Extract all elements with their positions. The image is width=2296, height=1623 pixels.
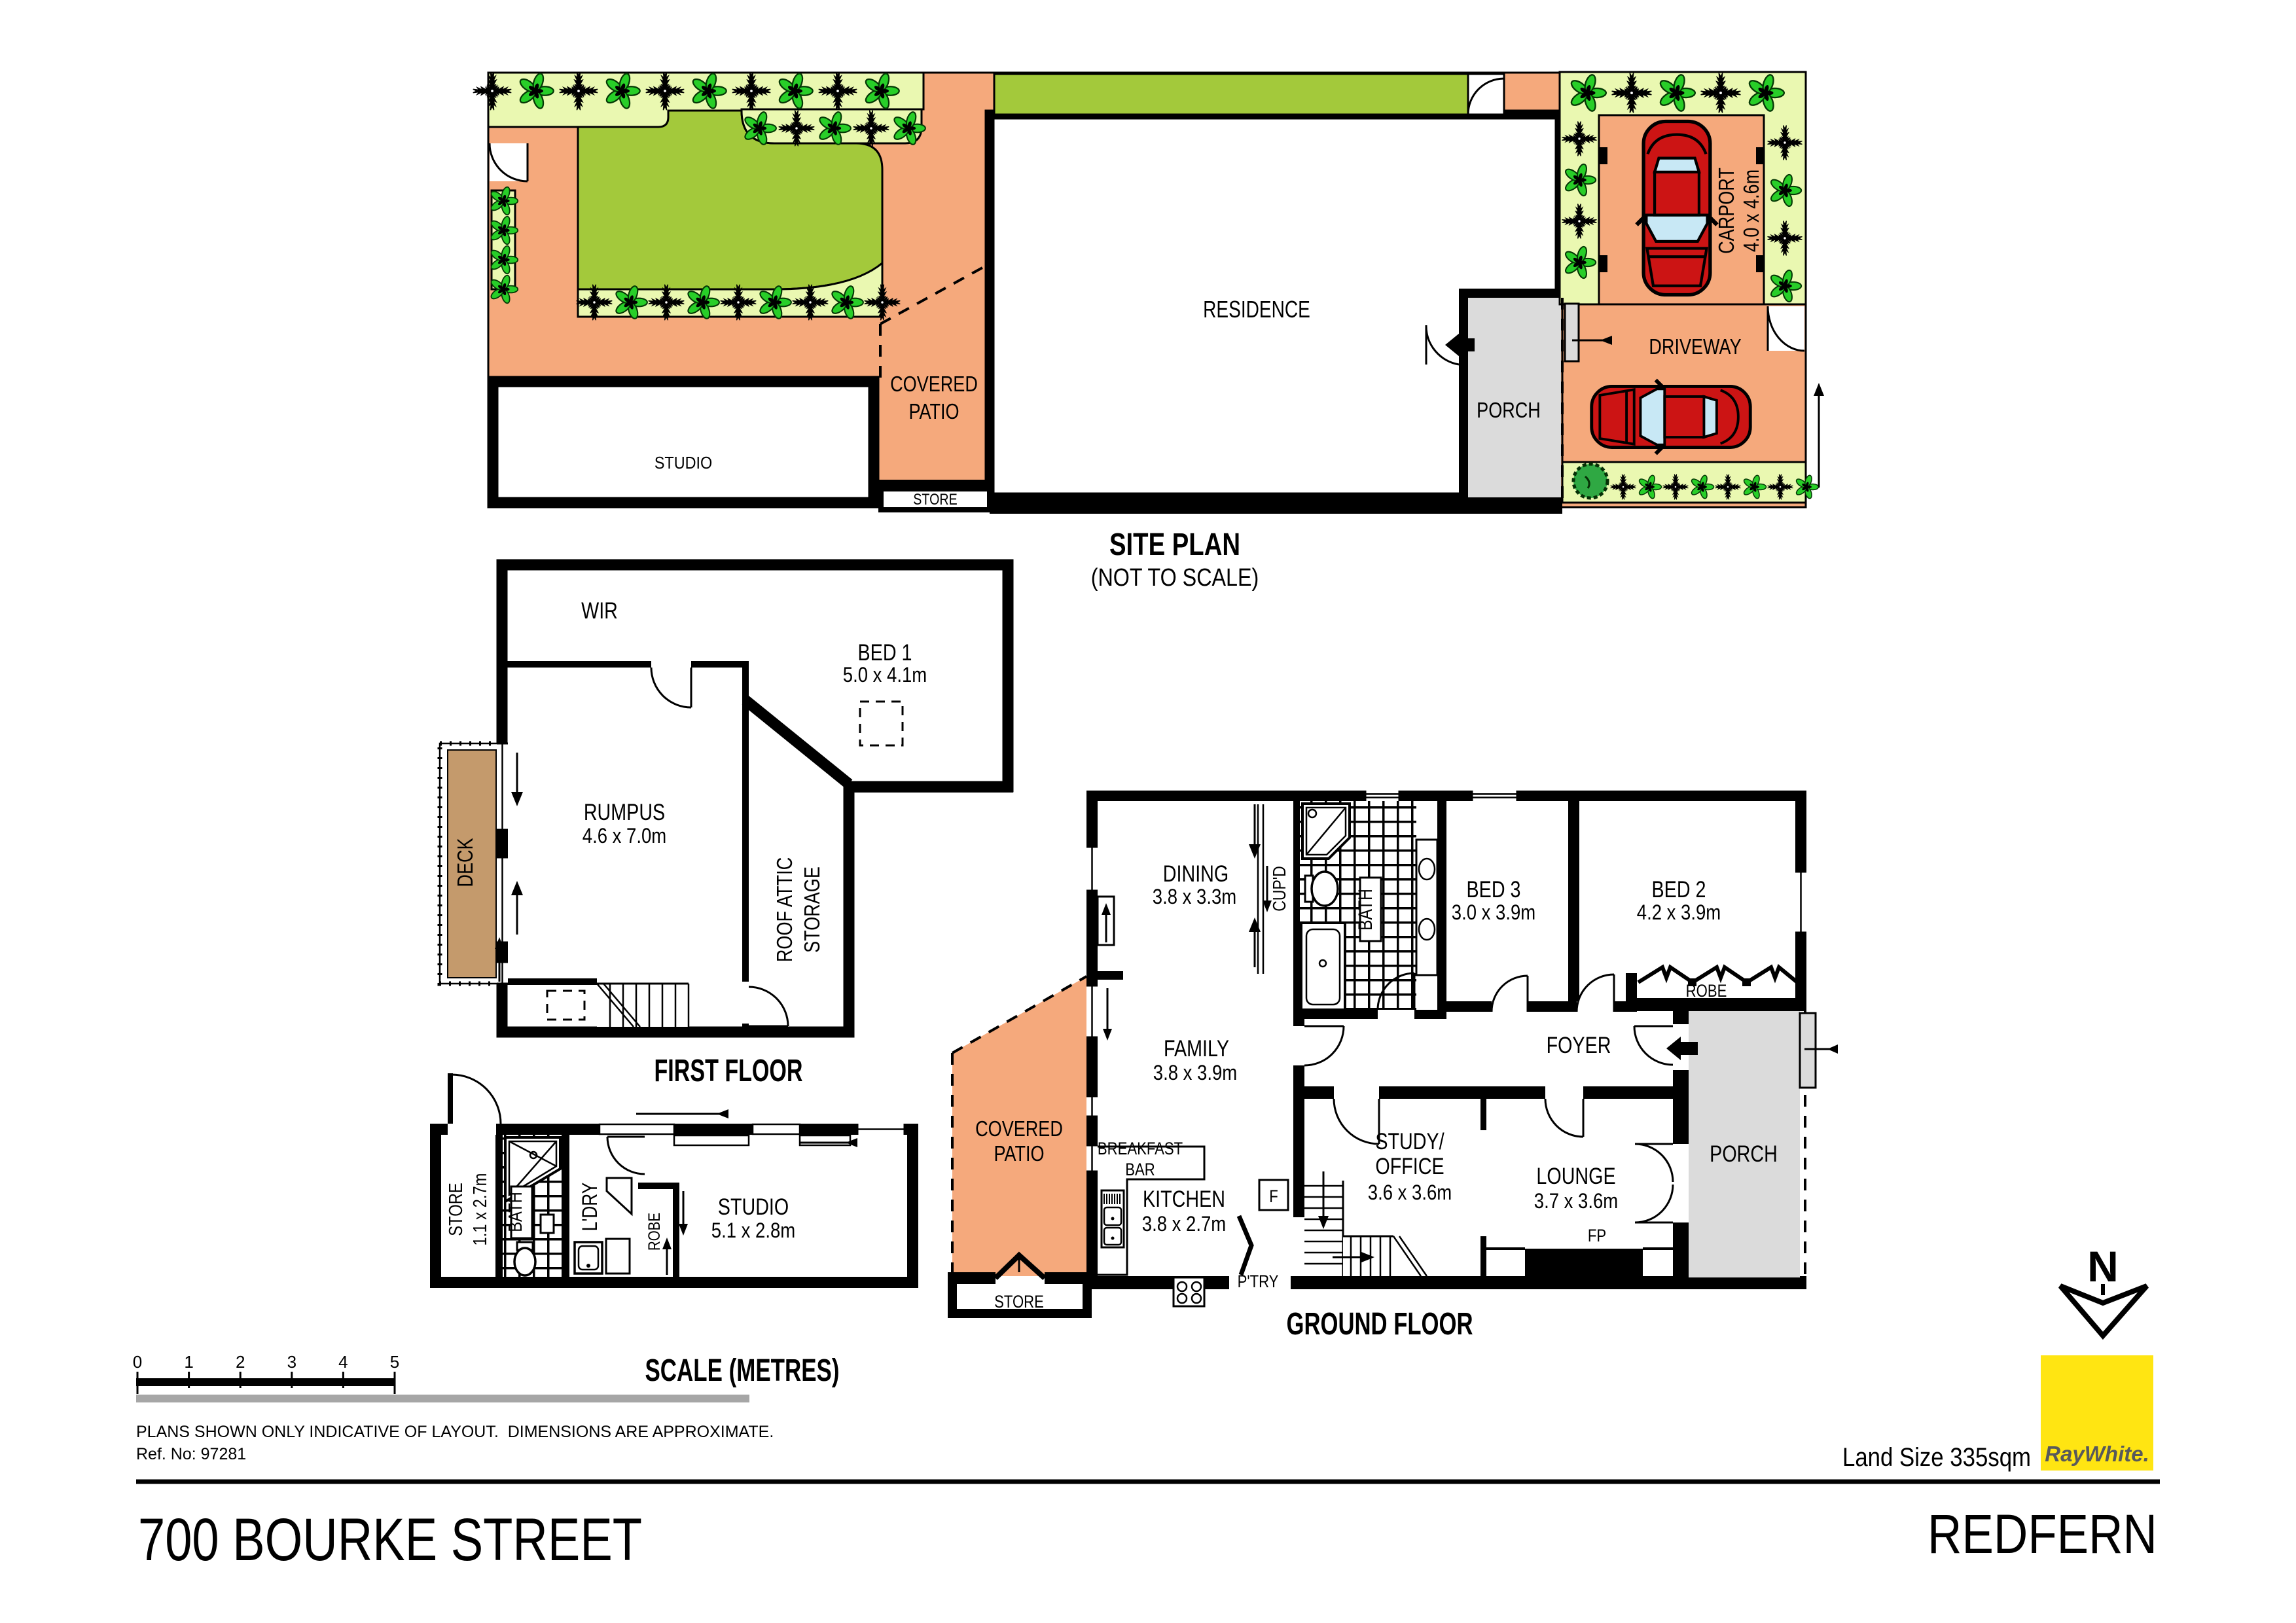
svg-text:700 BOURKE STREET: 700 BOURKE STREET [138, 1507, 642, 1573]
svg-text:FAMILY: FAMILY [1164, 1035, 1229, 1061]
svg-text:5: 5 [390, 1352, 399, 1372]
svg-text:3.6 x 3.6m: 3.6 x 3.6m [1368, 1181, 1452, 1204]
svg-text:(NOT TO SCALE): (NOT TO SCALE) [1091, 564, 1259, 592]
svg-text:STUDIO: STUDIO [655, 454, 712, 473]
svg-text:STORE: STORE [994, 1293, 1044, 1312]
svg-text:STORAGE: STORAGE [801, 866, 825, 953]
svg-text:BAR: BAR [1125, 1160, 1155, 1180]
svg-text:ROOF ATTIC: ROOF ATTIC [774, 857, 797, 962]
svg-text:PATIO: PATIO [908, 401, 959, 424]
svg-text:REDFERN: REDFERN [1928, 1503, 2157, 1565]
svg-text:PORCH: PORCH [1477, 399, 1541, 423]
svg-text:ROBE: ROBE [645, 1213, 663, 1251]
svg-text:ROBE: ROBE [1686, 982, 1727, 1001]
svg-text:KITCHEN: KITCHEN [1143, 1186, 1225, 1211]
svg-text:RUMPUS: RUMPUS [584, 799, 665, 825]
svg-text:STORE: STORE [913, 490, 957, 508]
svg-text:FP: FP [1588, 1226, 1606, 1246]
svg-text:4.6 x 7.0m: 4.6 x 7.0m [583, 825, 666, 847]
svg-text:COVERED: COVERED [975, 1118, 1063, 1141]
svg-text:3.0 x 3.9m: 3.0 x 3.9m [1452, 901, 1535, 924]
svg-text:SITE PLAN: SITE PLAN [1109, 527, 1240, 562]
svg-text:1: 1 [184, 1352, 193, 1372]
svg-text:3.7 x 3.6m: 3.7 x 3.6m [1534, 1190, 1618, 1213]
svg-text:BREAKFAST: BREAKFAST [1098, 1139, 1183, 1159]
svg-text:WIR: WIR [581, 597, 618, 623]
svg-text:GROUND FLOOR: GROUND FLOOR [1287, 1307, 1473, 1342]
svg-text:F: F [1269, 1187, 1278, 1207]
svg-text:PATIO: PATIO [994, 1143, 1044, 1166]
svg-text:STUDY/: STUDY/ [1375, 1128, 1444, 1154]
svg-text:COVERED: COVERED [890, 373, 978, 397]
svg-text:4.0 x 4.6m: 4.0 x 4.6m [1740, 169, 1764, 252]
svg-text:0: 0 [133, 1352, 142, 1372]
svg-text:BED 3: BED 3 [1467, 876, 1521, 902]
svg-text:L'DRY: L'DRY [579, 1183, 602, 1232]
svg-text:PLANS SHOWN ONLY INDICATIVE OF: PLANS SHOWN ONLY INDICATIVE OF LAYOUT. D… [136, 1423, 774, 1441]
svg-text:Ref. No: 97281: Ref. No: 97281 [136, 1445, 246, 1463]
svg-text:FIRST FLOOR: FIRST FLOOR [655, 1054, 803, 1088]
svg-text:BED 2: BED 2 [1652, 876, 1706, 902]
svg-text:BATH: BATH [1354, 889, 1376, 931]
svg-text:3.8 x 3.3m: 3.8 x 3.3m [1153, 885, 1236, 908]
svg-text:CARPORT: CARPORT [1715, 168, 1739, 254]
svg-text:5.1 x 2.8m: 5.1 x 2.8m [711, 1219, 795, 1242]
svg-text:4: 4 [338, 1352, 348, 1372]
svg-text:3: 3 [287, 1352, 296, 1372]
svg-text:PORCH: PORCH [1710, 1141, 1778, 1166]
svg-text:FOYER: FOYER [1547, 1032, 1611, 1058]
svg-text:OFFICE: OFFICE [1375, 1153, 1444, 1179]
svg-text:Land Size 335sqm: Land Size 335sqm [1842, 1443, 2031, 1472]
svg-text:STORE: STORE [445, 1183, 467, 1236]
svg-text:RayWhite.: RayWhite. [2045, 1442, 2149, 1466]
svg-text:DRIVEWAY: DRIVEWAY [1649, 336, 1741, 359]
svg-text:DINING: DINING [1163, 861, 1229, 886]
svg-text:LOUNGE: LOUNGE [1536, 1163, 1615, 1188]
svg-text:STUDIO: STUDIO [718, 1194, 789, 1219]
svg-text:1.1 x 2.7m: 1.1 x 2.7m [469, 1173, 491, 1246]
svg-text:3.8 x 2.7m: 3.8 x 2.7m [1142, 1213, 1226, 1236]
svg-text:BATH: BATH [505, 1192, 526, 1232]
svg-text:5.0 x 4.1m: 5.0 x 4.1m [843, 664, 927, 687]
svg-text:N: N [2087, 1242, 2119, 1291]
svg-text:RESIDENCE: RESIDENCE [1203, 296, 1310, 323]
svg-text:BED 1: BED 1 [858, 639, 912, 665]
svg-text:P'TRY: P'TRY [1238, 1272, 1279, 1292]
svg-text:DECK: DECK [454, 838, 478, 887]
svg-text:SCALE (METRES): SCALE (METRES) [645, 1353, 840, 1388]
svg-text:4.2 x 3.9m: 4.2 x 3.9m [1637, 901, 1721, 924]
svg-text:3.8 x 3.9m: 3.8 x 3.9m [1153, 1061, 1237, 1084]
svg-text:CUP'D: CUP'D [1270, 866, 1290, 911]
svg-text:2: 2 [236, 1352, 245, 1372]
